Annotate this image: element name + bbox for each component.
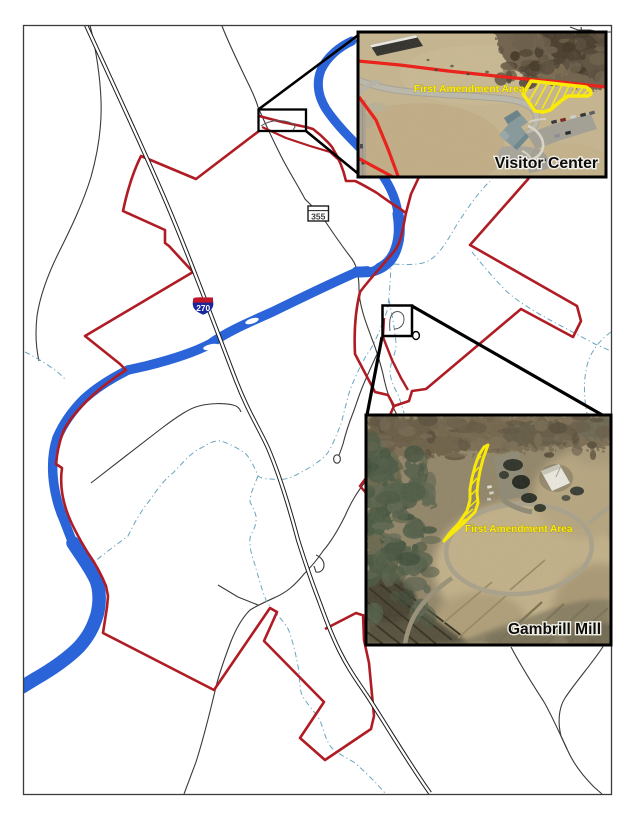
svg-text:First Amendment Area: First Amendment Area xyxy=(465,524,573,535)
svg-text:First Amendment Area: First Amendment Area xyxy=(414,84,525,95)
svg-text:270: 270 xyxy=(196,303,210,313)
svg-text:355: 355 xyxy=(311,211,326,221)
svg-text:Visitor Center: Visitor Center xyxy=(495,155,598,172)
svg-text:Gambrill Mill: Gambrill Mill xyxy=(508,621,601,638)
